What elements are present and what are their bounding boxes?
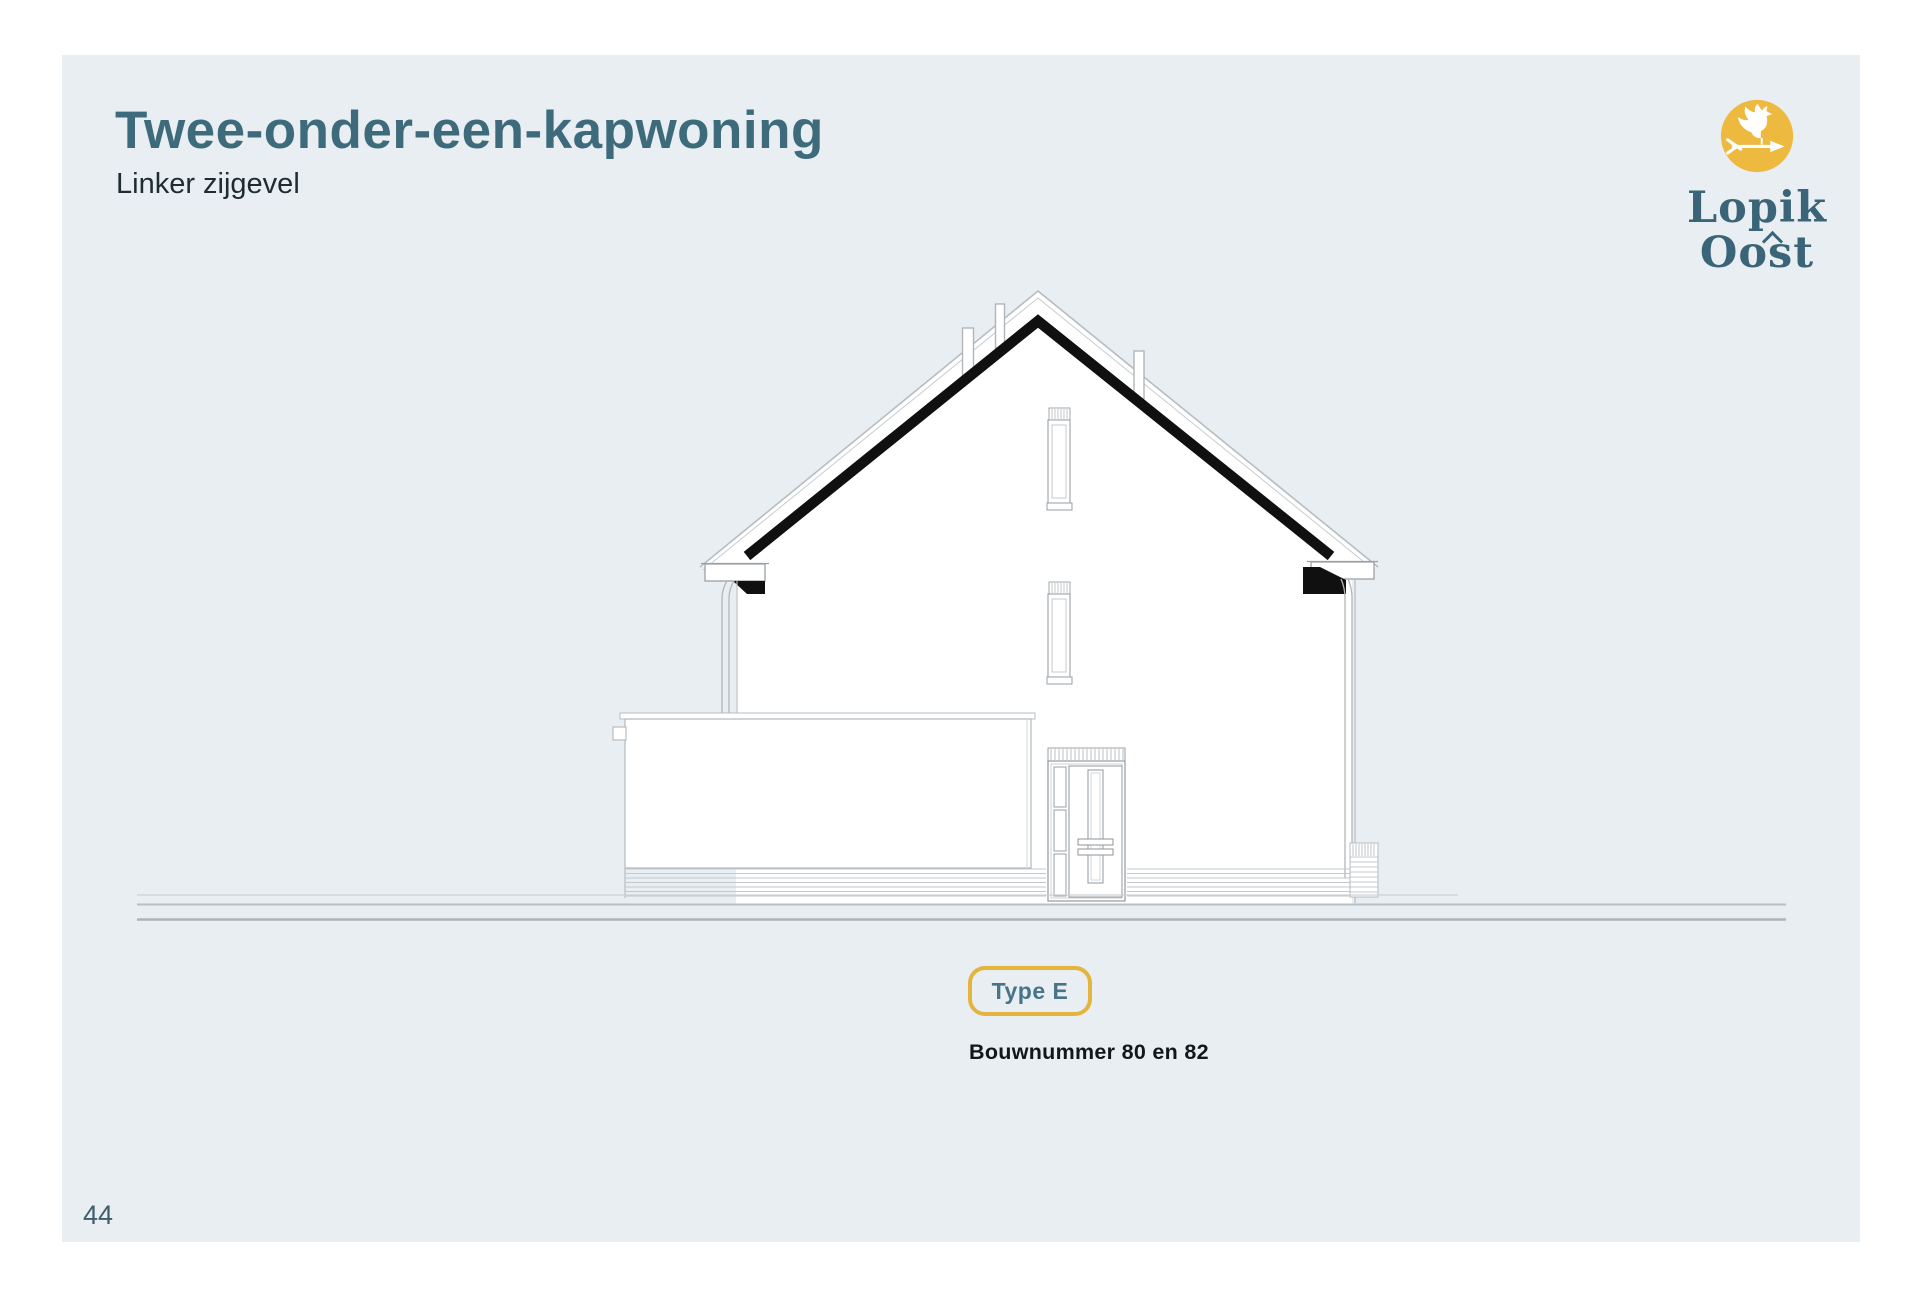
plinth-stripes bbox=[626, 869, 1377, 896]
page-number: 44 bbox=[83, 1200, 113, 1231]
type-badge-label: Type E bbox=[992, 978, 1069, 1005]
bouwnummer-caption: Bouwnummer 80 en 82 bbox=[969, 1040, 1209, 1065]
brochure-page: Twee-onder-een-kapwoning Linker zijgevel… bbox=[0, 0, 1920, 1299]
steps-block bbox=[1350, 843, 1378, 897]
door-sidelight bbox=[1054, 767, 1066, 896]
gable-window-lower bbox=[1047, 582, 1072, 684]
front-door bbox=[1046, 747, 1127, 902]
gable-window-upper bbox=[1047, 408, 1072, 510]
type-badge: Type E bbox=[968, 966, 1092, 1016]
house-elevation-drawing bbox=[0, 0, 1920, 1299]
